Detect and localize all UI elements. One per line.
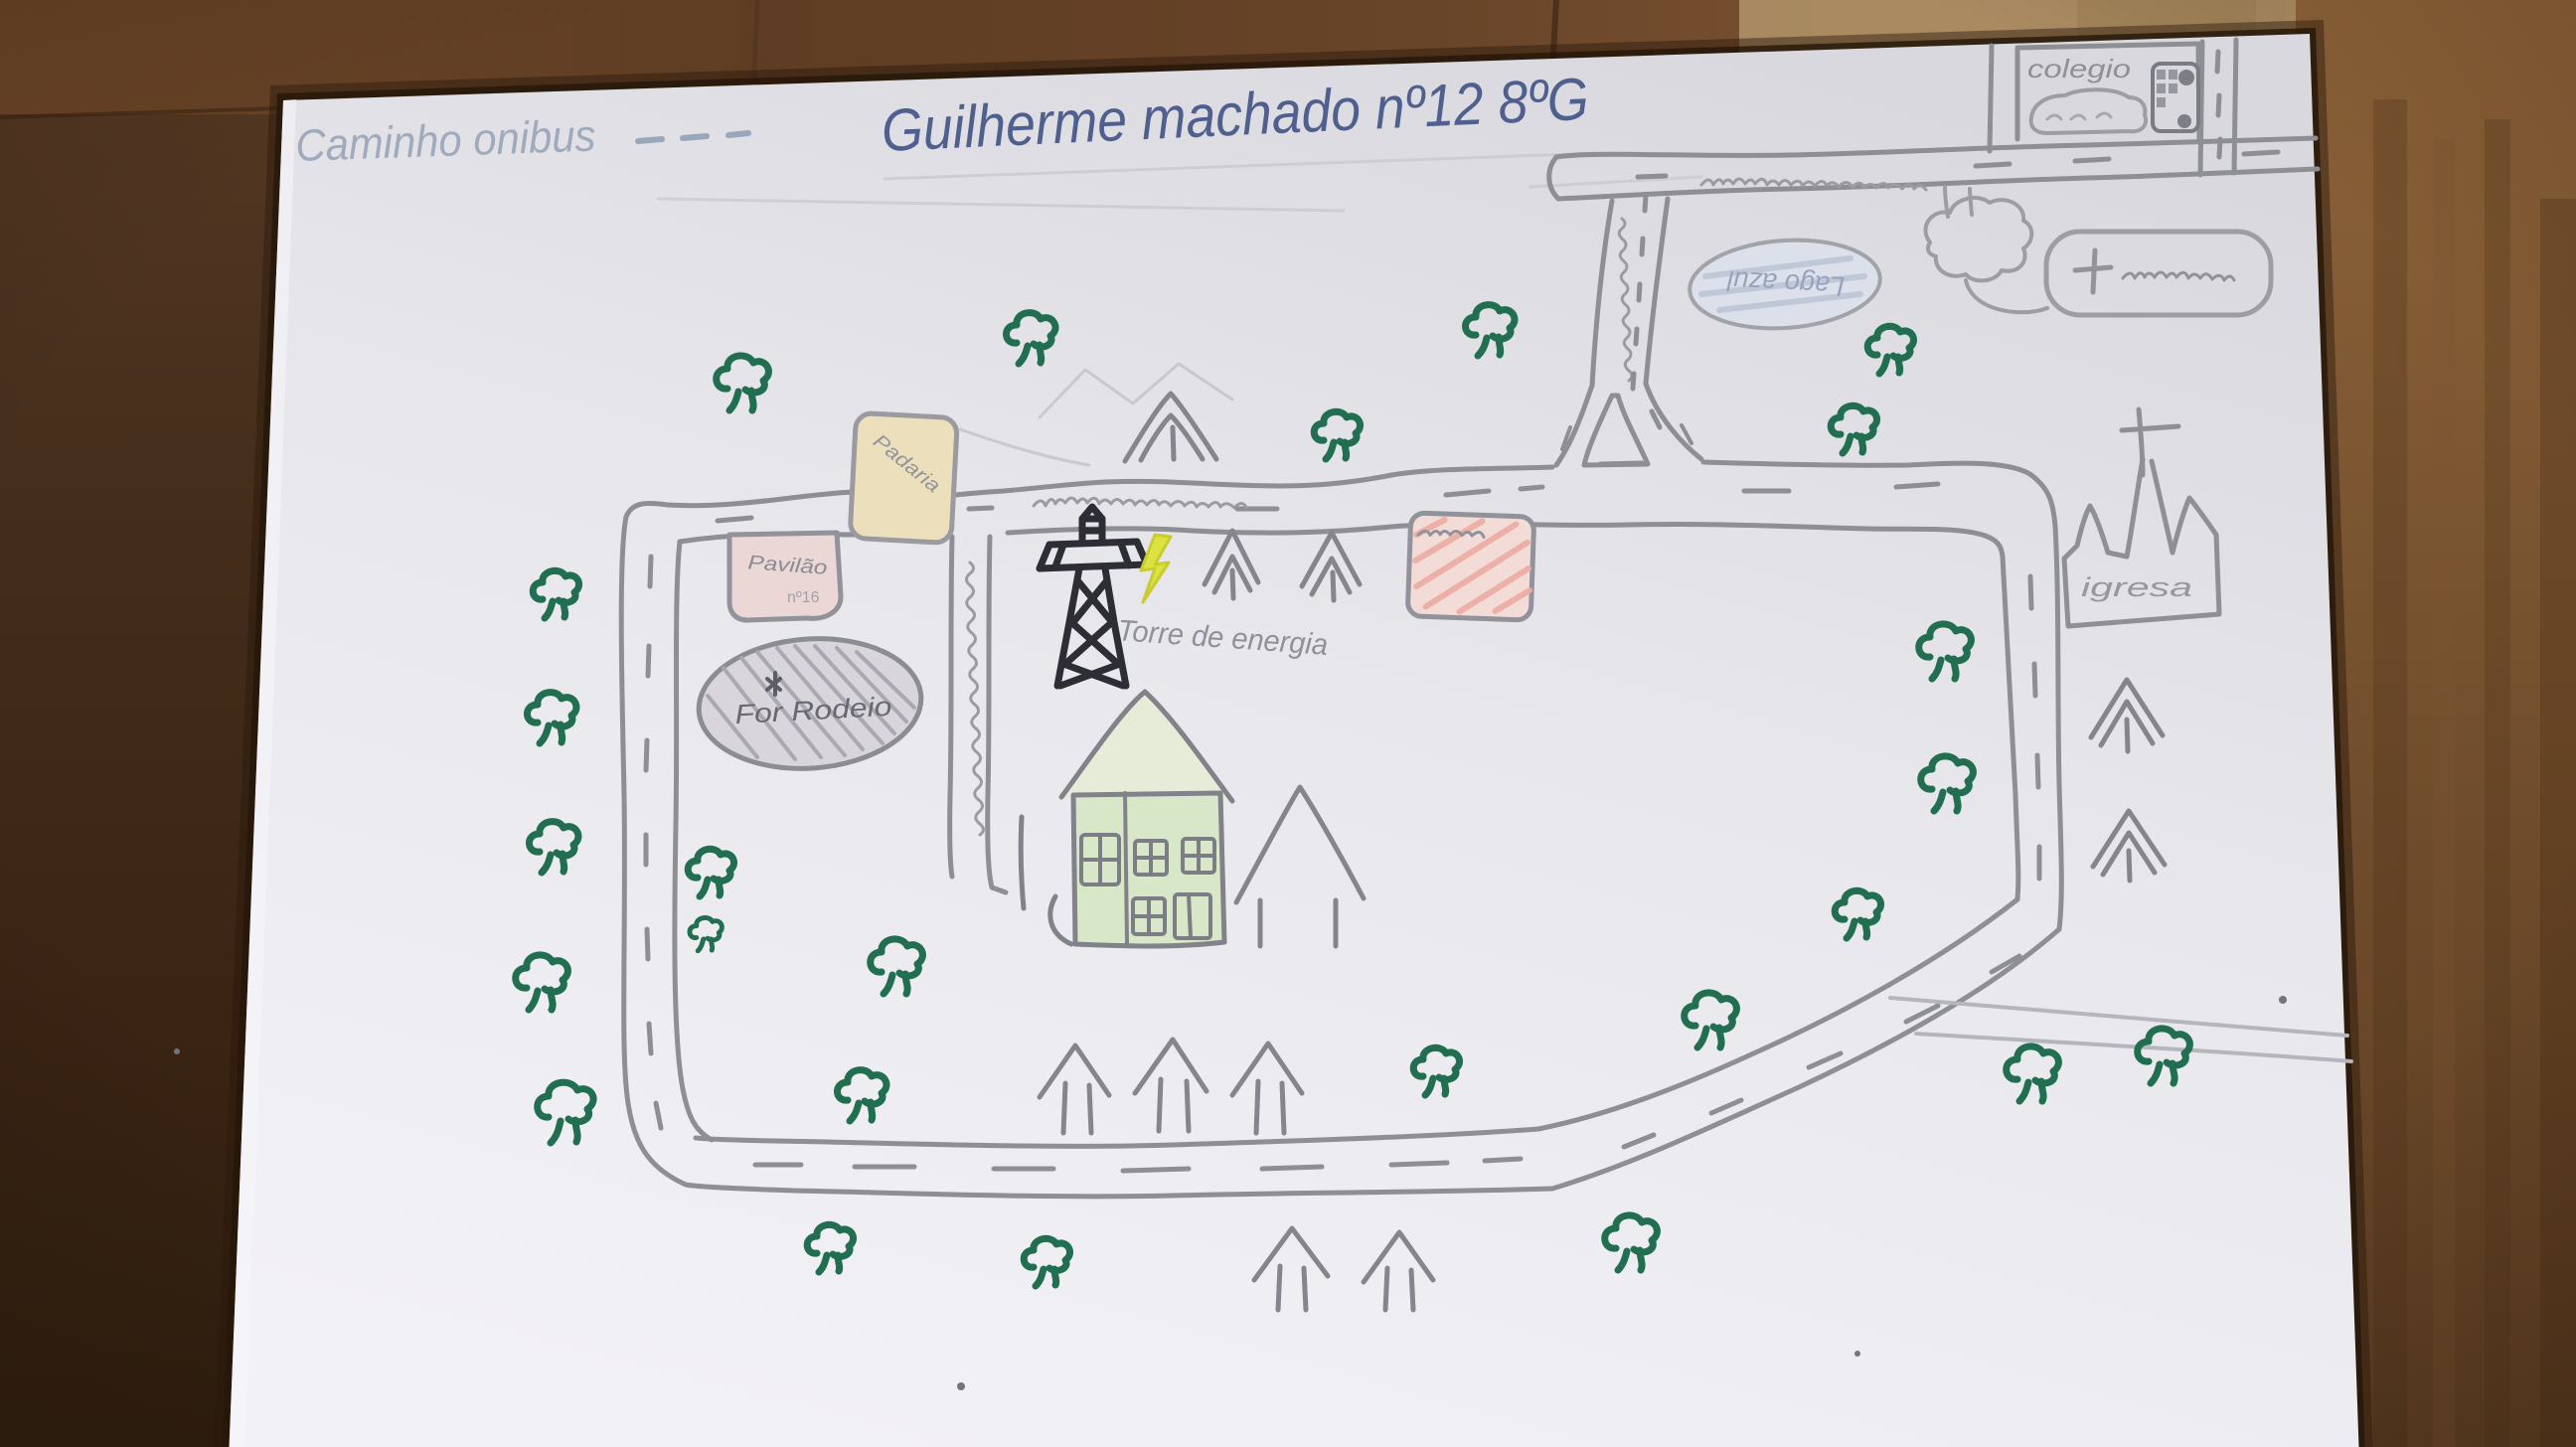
svg-text:igresa: igresa (2081, 572, 2192, 602)
svg-text:nº16: nº16 (787, 589, 820, 606)
svg-text:Caminho onibus: Caminho onibus (295, 109, 597, 171)
svg-text:colegio: colegio (2027, 54, 2131, 83)
svg-text:Lago azul: Lago azul (1726, 265, 1846, 302)
